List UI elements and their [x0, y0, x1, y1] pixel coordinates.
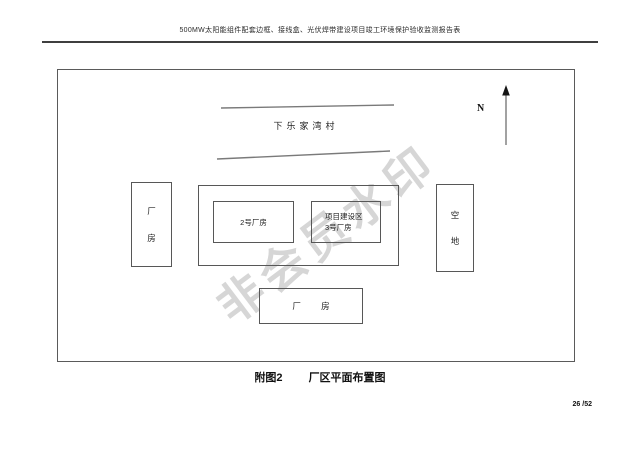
building-factory-bottom: 厂 房	[259, 288, 363, 324]
building-factory-left-char-1: 厂	[147, 205, 156, 217]
road-line-upper	[221, 105, 394, 108]
page-number: 26 /52	[556, 401, 592, 408]
building-factory-left: 厂 房	[131, 182, 172, 267]
building-factory-bottom-label: 厂 房	[292, 300, 329, 312]
building-factory-left-char-2: 房	[147, 232, 156, 244]
project-area-label-line-1: 项目建设区	[325, 211, 363, 222]
village-label: 下乐家湾村	[240, 119, 372, 132]
building-workshop-2-label: 2号厂房	[240, 217, 267, 228]
north-label: N	[477, 103, 484, 114]
north-arrow-head	[502, 85, 510, 96]
road-line-lower	[217, 151, 390, 159]
figure-caption-title: 厂区平面布置图	[309, 372, 386, 384]
building-vacant-lot: 空 地	[436, 184, 474, 272]
building-project-area: 项目建设区 3号厂房	[311, 201, 381, 243]
project-area-label-line-2: 3号厂房	[325, 222, 352, 233]
figure-caption: 附图2厂区平面布置图	[0, 369, 640, 385]
building-vacant-lot-char-1: 空	[451, 209, 460, 221]
document-page: 500MW太阳能组件配套边框、接线盒、光伏焊带建设项目竣工环境保护验收监测报告表…	[0, 0, 640, 452]
building-workshop-2: 2号厂房	[213, 201, 294, 243]
figure-caption-number: 附图2	[254, 372, 282, 384]
building-vacant-lot-char-2: 地	[451, 235, 460, 247]
